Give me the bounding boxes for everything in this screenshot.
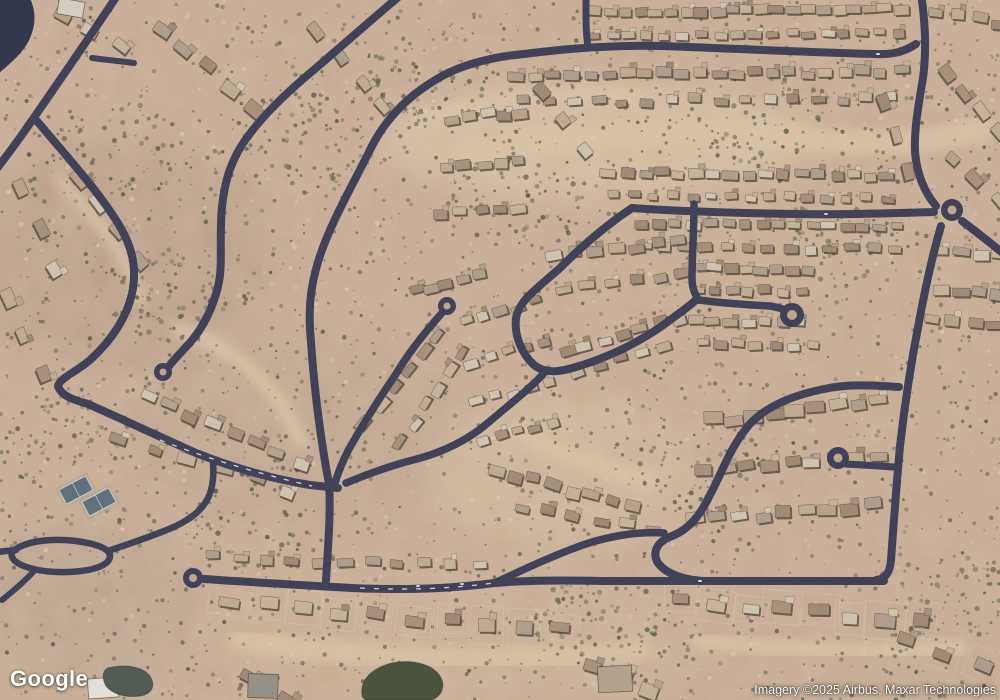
grain-overlay bbox=[0, 0, 1000, 700]
satellite-map-svg bbox=[0, 0, 1000, 700]
imagery-attribution: Imagery ©2025 Airbus, Maxar Technologies bbox=[754, 683, 996, 697]
map-canvas[interactable]: Google Imagery ©2025 Airbus, Maxar Techn… bbox=[0, 0, 1000, 700]
google-logo[interactable]: Google bbox=[10, 666, 88, 692]
